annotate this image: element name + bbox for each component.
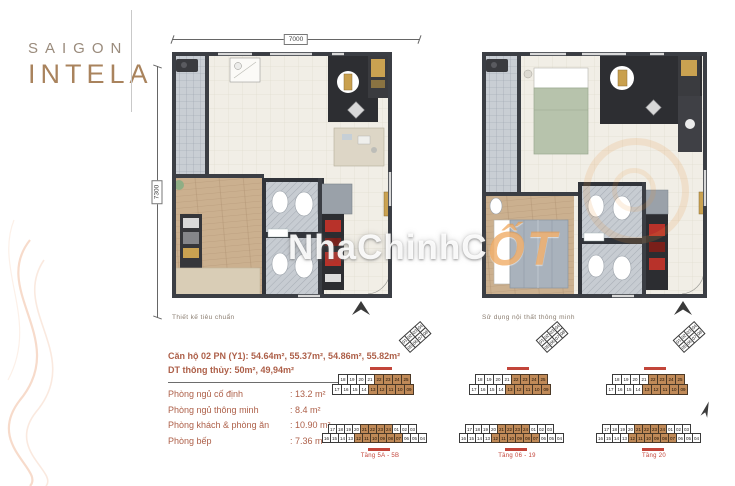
keyplan-highlight-marker xyxy=(642,448,664,451)
spec-label: Phòng ngủ thông minh xyxy=(168,403,290,419)
keyplan-highlight-marker xyxy=(505,448,527,451)
decorative-swirl xyxy=(0,150,110,486)
spec-value: : 8.4 m² xyxy=(290,403,321,419)
keyplan-highlight-marker xyxy=(644,367,666,370)
keyplan-highlight-marker xyxy=(370,367,392,370)
spec-label: Phòng ngủ cố định xyxy=(168,387,290,403)
keyplan-unit-cell: 09 xyxy=(404,384,414,395)
keyplan-top-strip: 1819202122232425171615141312111009 xyxy=(606,374,687,395)
brand-logo: SAIGON INTELA xyxy=(28,40,153,90)
keyplan-bottom-strip: 1718192021222324010203161514131211100908… xyxy=(322,424,426,443)
keyplan-highlight-marker xyxy=(368,448,390,451)
keyplan-row: 16151413121110090807060504 xyxy=(322,433,426,443)
keyplan-cluster: 1819202122232425171615141312111009 01020… xyxy=(459,350,593,480)
spec-value: : 13.2 m² xyxy=(290,387,326,403)
keyplan-highlight-marker xyxy=(507,367,529,370)
dimension-label-height: 7300 xyxy=(152,180,163,204)
watermark: NhaChinhCỐT xyxy=(288,222,558,277)
dimension-left: 7300 xyxy=(152,66,162,318)
keyplan-top-strip: 1819202122232425171615141312111009 xyxy=(332,374,413,395)
keyplan-row: 171615141312111009 xyxy=(469,384,550,395)
spec-value: : 7.36 m² xyxy=(290,434,326,450)
keyplan-unit-cell: 04 xyxy=(692,433,701,443)
keyplan-bottom-strip: 1718192021222324010203161514131211100908… xyxy=(459,424,563,443)
watermark-accent: ỐT xyxy=(488,223,559,276)
keyplan-unit-cell: 09 xyxy=(678,384,688,395)
plan-caption-smart: Sử dụng nội thất thông minh xyxy=(482,314,575,321)
floor-plan-standard: 7000 7300 xyxy=(150,20,440,340)
keyplan-unit-cell: 09 xyxy=(541,384,551,395)
dimension-top: 7000 xyxy=(172,34,420,44)
brand-name-bottom: INTELA xyxy=(28,59,153,90)
compass-icon xyxy=(698,400,714,420)
north-arrow-icon xyxy=(350,301,372,316)
keyplan-bottom-strip: 1718192021222324010203161514131211100908… xyxy=(596,424,700,443)
keyplan-row: 16151413121110090807060504 xyxy=(596,433,700,443)
dimension-label-width: 7000 xyxy=(284,34,308,45)
plan-caption-standard: Thiết kế tiêu chuẩn xyxy=(172,314,235,321)
specs-divider xyxy=(168,382,338,383)
keyplan-floor-label: Tầng 20 xyxy=(596,453,712,459)
keyplan-unit-cell: 04 xyxy=(418,433,427,443)
keyplan-row: 16151413121110090807060504 xyxy=(459,433,563,443)
watermark-text: NhaChinhC xyxy=(288,228,488,267)
keyplan-floor-label: Tầng 06 - 19 xyxy=(459,453,575,459)
floor-keyplans: 1819202122232425171615141312111009 01020… xyxy=(322,350,735,486)
keyplan-floor-label: Tầng 5A - 5B xyxy=(322,453,438,459)
north-arrow-icon xyxy=(672,301,694,316)
logo-divider xyxy=(131,10,132,112)
keyplan-top-strip: 1819202122232425171615141312111009 xyxy=(469,374,550,395)
keyplan-unit-cell: 04 xyxy=(555,433,564,443)
keyplan-cluster: 1819202122232425171615141312111009 01020… xyxy=(322,350,456,480)
brand-name-top: SAIGON xyxy=(28,40,153,57)
spec-label: Phòng khách & phòng ăn xyxy=(168,418,290,434)
watermark-ring-icon xyxy=(612,168,656,212)
keyplan-row: 171615141312111009 xyxy=(332,384,413,395)
keyplan-row: 171615141312111009 xyxy=(606,384,687,395)
spec-label: Phòng bếp xyxy=(168,434,290,450)
